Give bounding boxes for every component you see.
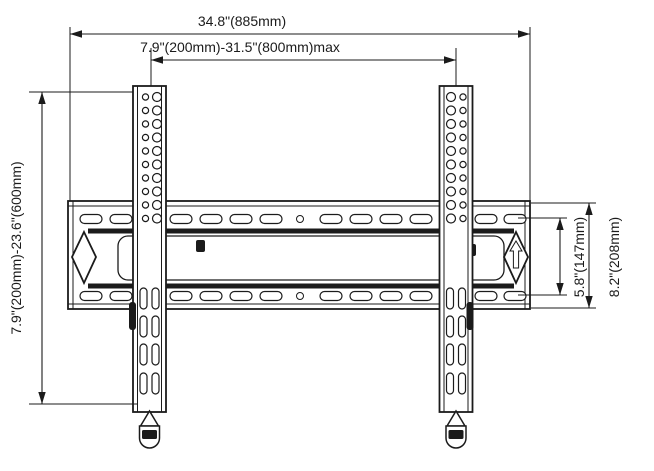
arm-slot — [140, 373, 147, 394]
plate-slot — [475, 215, 497, 224]
vesa-hole — [447, 214, 456, 223]
drawing-page: 34.8"(885mm) 7.9"(200mm)-31.5"(800mm)max… — [0, 0, 654, 471]
vesa-hole — [460, 202, 466, 208]
vesa-hole — [142, 175, 148, 181]
vesa-hole — [447, 160, 456, 169]
plate-slot — [320, 292, 342, 301]
vesa-hole — [153, 133, 162, 142]
vesa-hole — [460, 161, 466, 167]
arm-slot — [447, 316, 454, 337]
vesa-hole — [460, 175, 466, 181]
right-vesa-arm — [440, 86, 474, 448]
plate-slot — [200, 215, 222, 224]
arm-slot — [152, 288, 159, 309]
right-arm-knob — [446, 411, 466, 448]
plate-slot — [230, 215, 252, 224]
plate-slot — [380, 215, 402, 224]
vesa-hole — [142, 161, 148, 167]
arm-slot — [140, 316, 147, 337]
left-latch-tab — [196, 240, 205, 252]
vesa-hole — [460, 121, 466, 127]
arm-slot — [459, 316, 466, 337]
plate-slot — [504, 292, 526, 301]
vesa-hole — [153, 201, 162, 210]
vesa-hole — [142, 94, 148, 100]
dim-mount-width-label: 7.9"(200mm)-31.5"(800mm)max — [140, 39, 340, 55]
plate-slot — [380, 292, 402, 301]
vesa-hole — [447, 133, 456, 142]
vesa-hole — [142, 215, 148, 221]
vesa-hole — [460, 134, 466, 140]
knob-cone — [447, 411, 465, 426]
vesa-hole — [460, 215, 466, 221]
vesa-hole — [153, 187, 162, 196]
vesa-hole — [460, 107, 466, 113]
arm-slot — [152, 344, 159, 365]
plate-slot — [475, 292, 497, 301]
left-arm-lock-tab — [129, 302, 136, 330]
plate-slot — [350, 292, 372, 301]
knob-grip — [449, 430, 464, 439]
plate-slot — [80, 215, 102, 224]
vesa-hole — [153, 106, 162, 115]
plate-slot — [200, 292, 222, 301]
plate-slot — [170, 215, 192, 224]
vesa-hole — [447, 147, 456, 156]
plate-slot — [170, 292, 192, 301]
vesa-hole — [142, 107, 148, 113]
plate-slot — [410, 215, 432, 224]
vesa-hole — [153, 214, 162, 223]
vesa-hole — [153, 160, 162, 169]
vesa-hole — [142, 121, 148, 127]
vesa-hole — [142, 202, 148, 208]
arm-slot — [152, 316, 159, 337]
vesa-hole — [142, 188, 148, 194]
right-arm-lock-tab — [467, 302, 474, 330]
plate-slot — [110, 292, 132, 301]
knob-grip — [142, 430, 157, 439]
vesa-hole — [142, 148, 148, 154]
knob-cone — [141, 411, 159, 426]
plate-center-hole-top — [297, 216, 304, 223]
dim-mount-height-label: 7.9"(200mm)-23.6"(600mm) — [8, 161, 24, 334]
plate-center-hole-bottom — [297, 293, 304, 300]
vesa-hole — [447, 201, 456, 210]
arm-slot — [140, 288, 147, 309]
vesa-hole — [153, 120, 162, 129]
vesa-hole — [460, 188, 466, 194]
arm-slot — [447, 344, 454, 365]
arm-slot — [459, 373, 466, 394]
plate-slot — [110, 215, 132, 224]
plate-slot — [230, 292, 252, 301]
arm-slot — [140, 344, 147, 365]
arm-slot — [459, 344, 466, 365]
plate-slot — [80, 292, 102, 301]
dim-outer-height-label: 8.2"(208mm) — [606, 217, 622, 297]
left-arm-knob — [140, 411, 160, 448]
vesa-hole — [460, 94, 466, 100]
vesa-hole — [447, 120, 456, 129]
vesa-hole — [460, 148, 466, 154]
arm-slot — [447, 288, 454, 309]
dim-mount-width-range: 7.9"(200mm)-31.5"(800mm)max — [140, 39, 456, 86]
dim-overall-width-label: 34.8"(885mm) — [198, 13, 286, 29]
vesa-hole — [142, 134, 148, 140]
plate-slot — [260, 215, 282, 224]
plate-slot — [320, 215, 342, 224]
plate-slot — [350, 215, 372, 224]
arm-slot — [152, 373, 159, 394]
arm-slot — [447, 373, 454, 394]
mount-diagram: 34.8"(885mm) 7.9"(200mm)-31.5"(800mm)max… — [0, 0, 654, 471]
left-vesa-arm — [129, 86, 166, 448]
vesa-hole — [447, 93, 456, 102]
vesa-hole — [153, 147, 162, 156]
dim-inner-height-label: 5.8"(147mm) — [571, 217, 587, 297]
arm-slot — [459, 288, 466, 309]
vesa-hole — [153, 93, 162, 102]
vesa-hole — [447, 106, 456, 115]
plate-slot — [260, 292, 282, 301]
vesa-hole — [447, 187, 456, 196]
plate-slot — [410, 292, 432, 301]
vesa-hole — [447, 174, 456, 183]
plate-slot — [504, 215, 526, 224]
vesa-hole — [153, 174, 162, 183]
